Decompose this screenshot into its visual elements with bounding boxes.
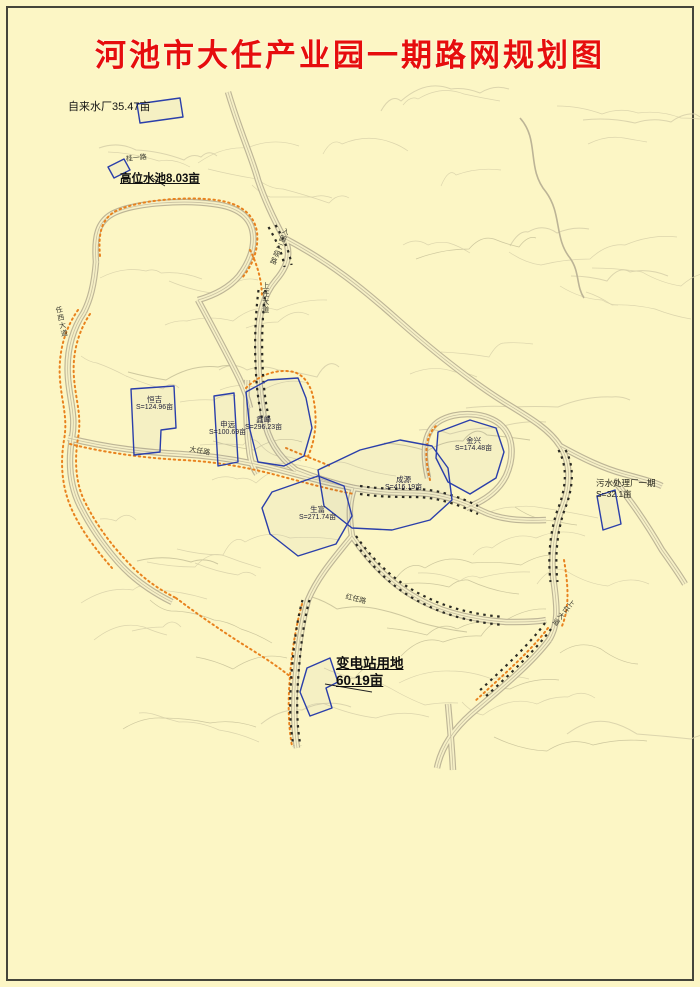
- parcel-label-xinfeng: 鑫峰 S=296.23亩: [245, 415, 282, 433]
- parcel-area: S=100.69亩: [209, 429, 246, 436]
- parcel-label-shenyuan: 申远 S=100.69亩: [209, 420, 246, 438]
- sewage-plant-label: 污水处理厂一期 S=32.1亩: [596, 478, 656, 499]
- facility-name: 变电站用地: [336, 656, 404, 673]
- parcel-name: 金兴: [455, 436, 492, 445]
- parcel-label-chengyuan: 成源 S=416.19亩: [385, 475, 422, 493]
- parcel-area: S=296.23亩: [245, 424, 282, 431]
- map-canvas: [0, 0, 700, 987]
- parcel-label-jinxing: 金兴 S=174.48亩: [455, 436, 492, 454]
- parcel-area: S=174.48亩: [455, 445, 492, 452]
- parcel-label-hengji: 恒吉 S=124.96亩: [136, 395, 173, 413]
- substation-label: 变电站用地 60.19亩: [336, 656, 404, 690]
- facility-area: 60.19亩: [336, 673, 404, 690]
- parcel-area: S=271.74亩: [299, 514, 336, 521]
- facility-area: S=32.1亩: [596, 489, 632, 499]
- parcel-outline-substation: [300, 658, 338, 716]
- parcel-name: 成源: [385, 475, 422, 484]
- water-plant-label: 自来水厂35.47亩: [68, 101, 151, 115]
- parcel-name: 申远: [209, 420, 246, 429]
- road-label-shangren-mid: 上任大道: [260, 282, 269, 314]
- parcel-name: 鑫峰: [245, 415, 282, 424]
- facility-name: 污水处理厂一期: [596, 478, 656, 489]
- high-pool-label: 高位水池8.03亩: [120, 172, 200, 186]
- planning-map-page: 河池市大任产业园一期路网规划图 自来水厂35.47亩 高位水池8.03亩 桂一路…: [0, 0, 700, 987]
- parcel-name: 生富: [299, 505, 336, 514]
- parcel-area: S=416.19亩: [385, 484, 422, 491]
- parcel-label-shengfu: 生富 S=271.74亩: [299, 505, 336, 523]
- parcel-area: S=124.96亩: [136, 404, 173, 411]
- parcel-name: 恒吉: [136, 395, 173, 404]
- stream-line: [520, 118, 584, 298]
- page-title: 河池市大任产业园一期路网规划图: [0, 30, 700, 75]
